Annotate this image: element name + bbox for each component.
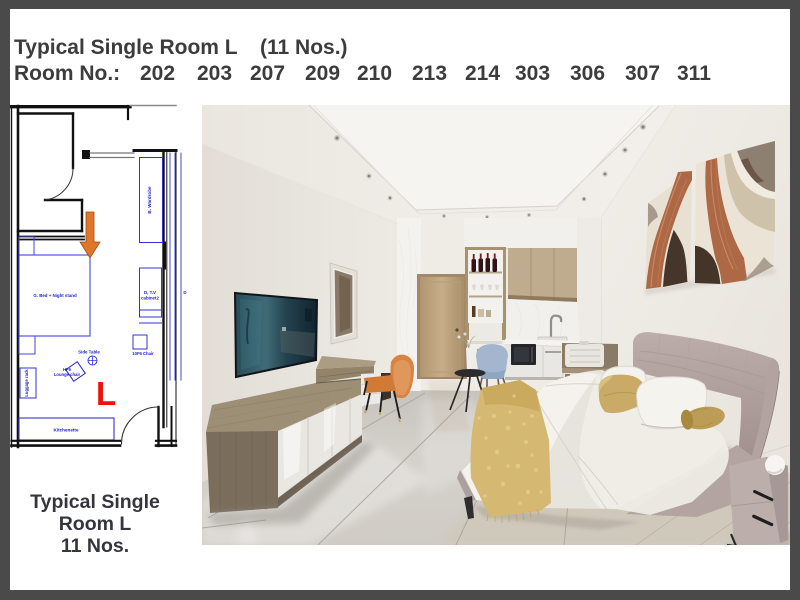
svg-text:10F6 Chair: 10F6 Chair	[132, 351, 154, 356]
svg-text:cabinet2: cabinet2	[141, 296, 159, 301]
svg-text:L: L	[96, 375, 116, 412]
svg-text:B. Wardrobe: B. Wardrobe	[147, 186, 152, 214]
svg-text:Side Table: Side Table	[78, 350, 100, 355]
svg-text:Lounge chair: Lounge chair	[54, 372, 81, 377]
svg-text:D: D	[183, 290, 186, 295]
svg-text:G. Bed + Night stand: G. Bed + Night stand	[33, 293, 77, 298]
svg-text:Luggage rack: Luggage rack	[24, 369, 29, 397]
svg-text:D, T.V: D, T.V	[144, 290, 156, 295]
svg-text:Kitchenette: Kitchenette	[53, 428, 78, 433]
